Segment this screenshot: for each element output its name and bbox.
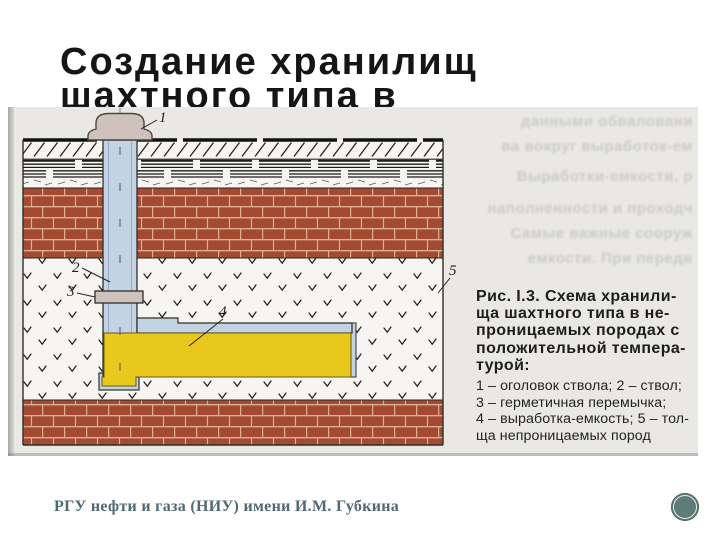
figure-caption: Рис. I.3. Схема хранили- ща шахтного тип… [476, 288, 702, 444]
label-2-shaft: 2 [72, 260, 80, 276]
hermetic-seal [95, 291, 143, 303]
bleedthrough-line: Самые важные сооруж [511, 225, 693, 242]
caption-legend-line: 4 – выработка-емкость; 5 – тол- [476, 411, 702, 428]
lower-brick-layer [23, 400, 443, 445]
caption-heading-line: проницаемых породах с [476, 322, 702, 339]
soil-hatch-layer [23, 142, 443, 159]
label-5-rock: 5 [449, 263, 457, 279]
bleedthrough-line: ва вокруг выработок-ем [501, 138, 693, 155]
caption-heading-line: турой: [476, 357, 702, 374]
presentation-slide: Создание хранилищ шахтного типа в данным… [0, 0, 720, 540]
scan-left-edge-shadow [8, 107, 14, 456]
bleedthrough-line: наполненности и проходч [488, 200, 693, 217]
caption-legend-line: 3 – герметичная перемычка; [476, 395, 702, 412]
label-4-chamber: 4 [219, 304, 227, 320]
circle-ring [673, 495, 697, 519]
navigation-circle-button[interactable] [671, 493, 699, 521]
caption-heading-line: Рис. I.3. Схема хранили- [476, 288, 702, 305]
bleedthrough-line: данными обваловани [521, 113, 693, 130]
caption-heading-line: ща шахтного типа в не- [476, 305, 702, 322]
caption-heading-line: положительной темпера- [476, 340, 702, 357]
bleedthrough-line: емкости. При передв [528, 250, 693, 267]
caption-legend-line: ща непроницаемых пород [476, 428, 702, 445]
mine-storage-diagram: 1 2 3 4 5 [20, 107, 460, 456]
slide-footer-institution: РГУ нефти и газа (НИУ) имени И.М. Губкин… [54, 498, 399, 516]
caption-legend-line: 1 – оголовок ствола; 2 – ствол; [476, 378, 702, 395]
page-bleedthrough-text: данными обваловани ва вокруг выработок-е… [463, 107, 695, 277]
upper-brick-layer [23, 188, 443, 258]
label-3-seal: 3 [66, 284, 75, 300]
label-1-shaft-head: 1 [159, 110, 167, 126]
shaft-head [88, 114, 152, 141]
scanned-figure-image: данными обваловани ва вокруг выработок-е… [8, 107, 698, 456]
bleedthrough-line: Выработки-емкости, р [517, 168, 693, 185]
stipple-layer [23, 179, 443, 189]
